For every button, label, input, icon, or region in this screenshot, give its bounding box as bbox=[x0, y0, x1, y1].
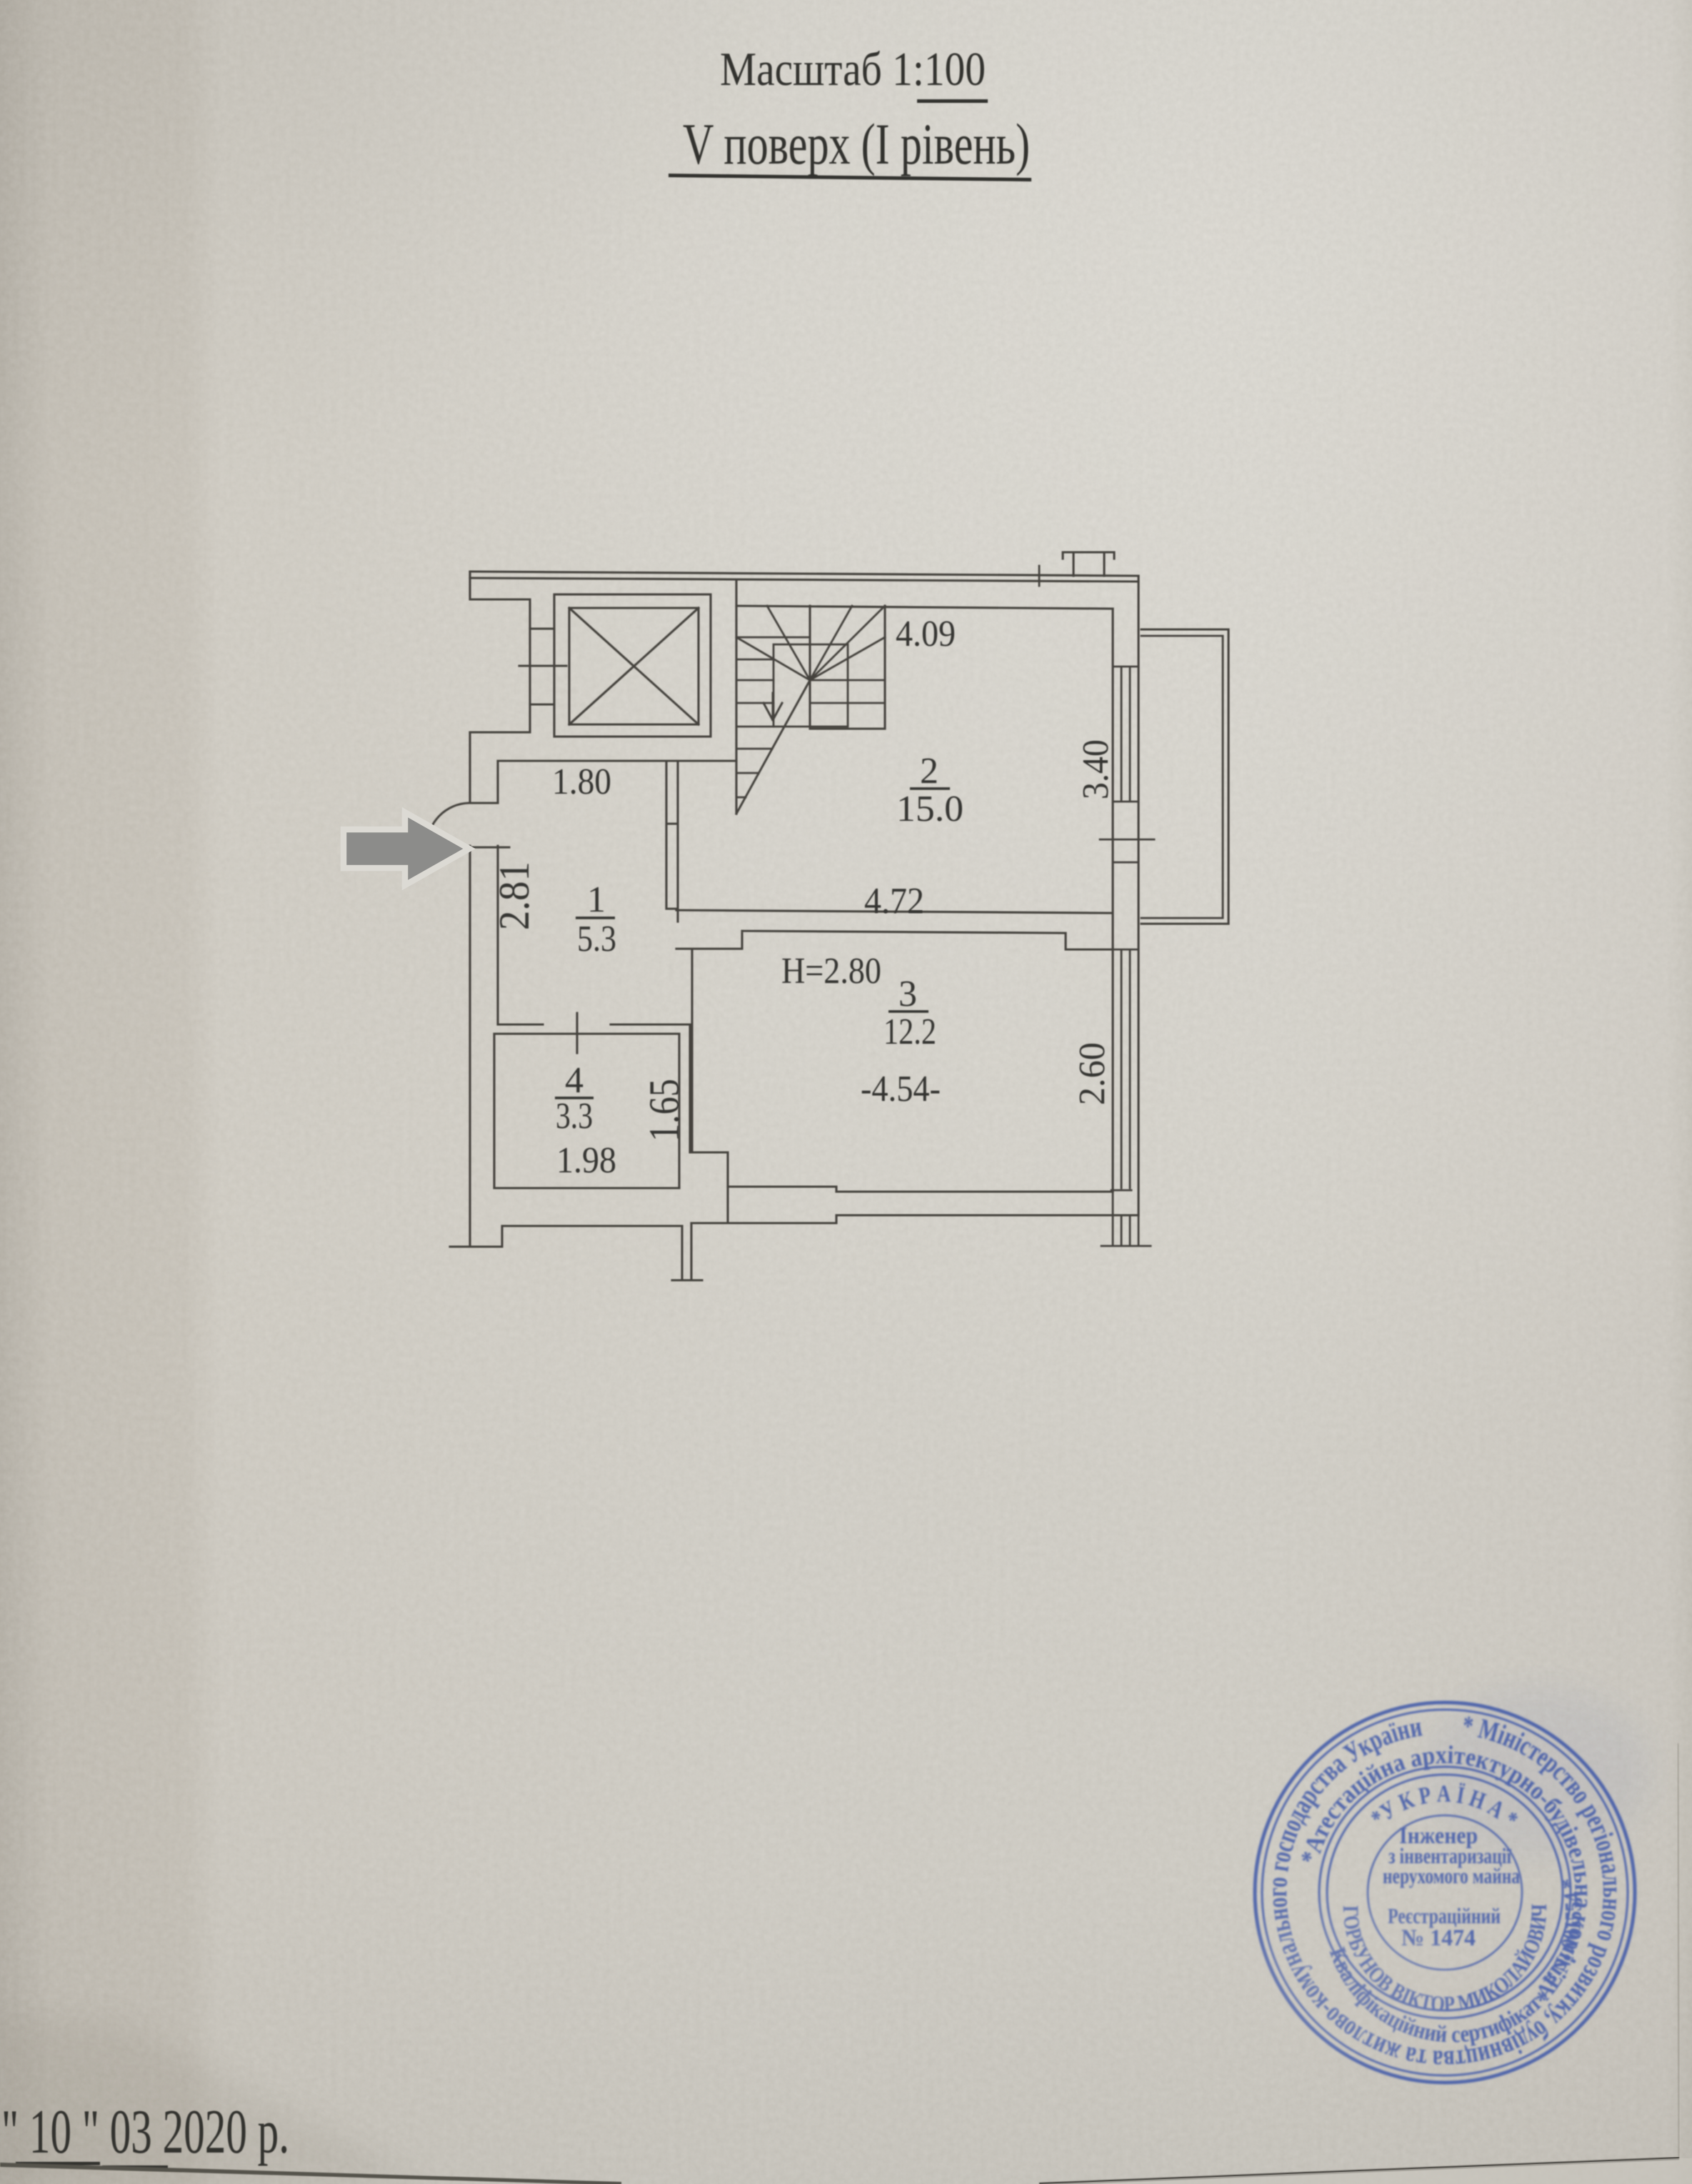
svg-text:1.80: 1.80 bbox=[552, 762, 611, 802]
svg-text:12.2: 12.2 bbox=[883, 1012, 936, 1052]
svg-text:2.60: 2.60 bbox=[1072, 1042, 1113, 1105]
svg-text:3: 3 bbox=[898, 974, 917, 1014]
svg-text:1.98: 1.98 bbox=[556, 1140, 616, 1181]
svg-text:3.40: 3.40 bbox=[1076, 739, 1116, 799]
svg-text:4: 4 bbox=[565, 1060, 584, 1101]
svg-text:4.09: 4.09 bbox=[896, 614, 956, 654]
svg-text:4.72: 4.72 bbox=[864, 881, 924, 922]
svg-text:нерухомого майна: нерухомого майна bbox=[1383, 1863, 1520, 1888]
svg-text:" 10 " 03 2020 р.: " 10 " 03 2020 р. bbox=[1, 2098, 289, 2167]
svg-text:Масштаб 1:100: Масштаб 1:100 bbox=[720, 43, 986, 96]
svg-text:5.3: 5.3 bbox=[577, 919, 616, 959]
svg-text:1.65: 1.65 bbox=[641, 1079, 688, 1142]
svg-text:2.81: 2.81 bbox=[491, 862, 538, 930]
svg-text:3.3: 3.3 bbox=[556, 1096, 593, 1137]
svg-text:1: 1 bbox=[587, 879, 606, 920]
svg-text:-4.54-: -4.54- bbox=[861, 1069, 941, 1110]
svg-text:15.0: 15.0 bbox=[896, 789, 963, 829]
svg-text:V поверх (І рівень): V поверх (І рівень) bbox=[683, 111, 1030, 176]
svg-text:2: 2 bbox=[920, 751, 938, 792]
svg-text:Н=2.80: Н=2.80 bbox=[781, 951, 881, 992]
